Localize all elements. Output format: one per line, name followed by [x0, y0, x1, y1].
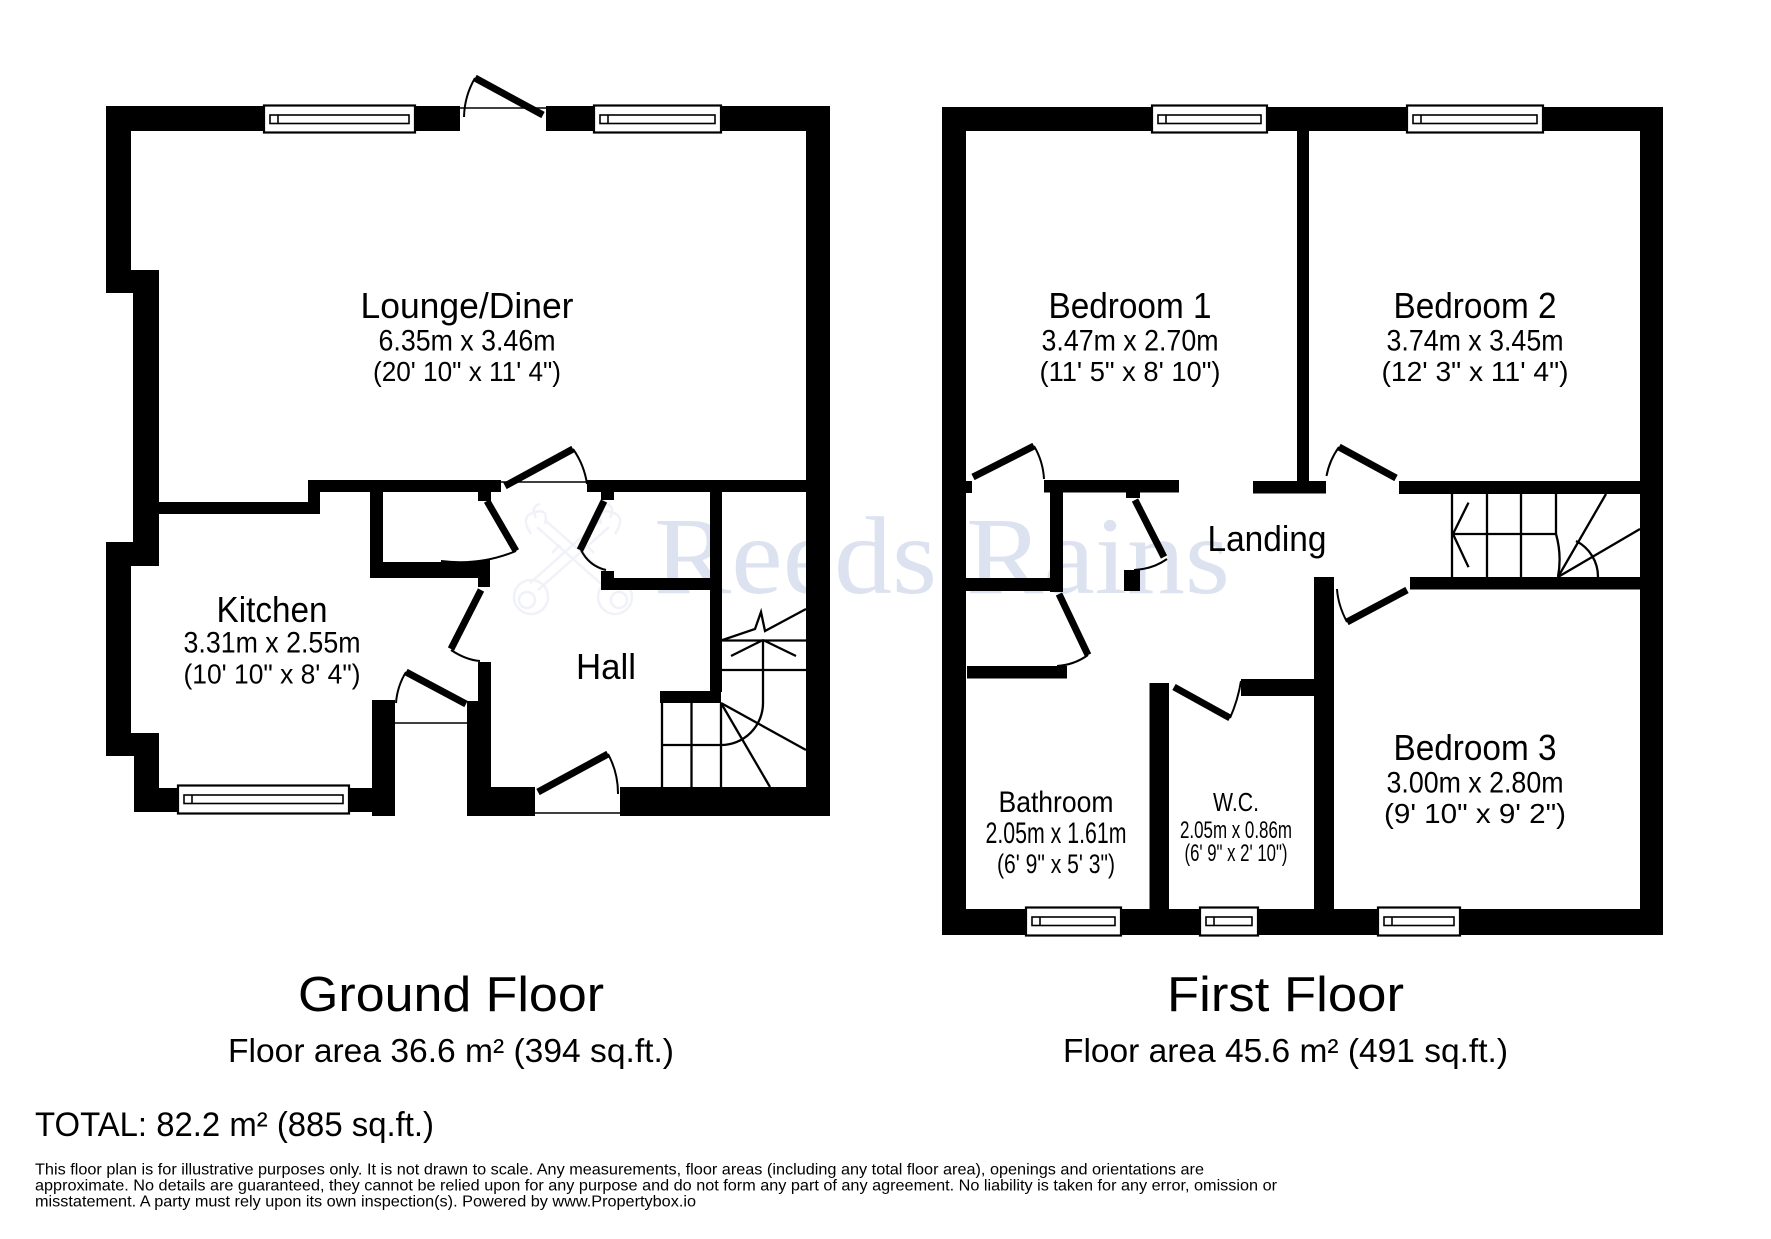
svg-text:3.47m x 2.70m: 3.47m x 2.70m — [1042, 325, 1219, 358]
svg-text:2.05m x 1.61m: 2.05m x 1.61m — [986, 817, 1127, 850]
svg-text:approximate. No details are gu: approximate. No details are guaranteed, … — [35, 1178, 1278, 1195]
svg-text:3.31m x 2.55m: 3.31m x 2.55m — [184, 627, 361, 660]
svg-text:Bedroom 1: Bedroom 1 — [1049, 285, 1212, 326]
svg-text:(6' 9" x 2' 10"): (6' 9" x 2' 10") — [1185, 840, 1288, 867]
svg-text:Ground Floor: Ground Floor — [298, 967, 604, 1022]
svg-text:Bathroom: Bathroom — [999, 786, 1114, 819]
svg-text:Bedroom 3: Bedroom 3 — [1394, 727, 1557, 768]
svg-text:Floor area 45.6 m² (491 sq.ft.: Floor area 45.6 m² (491 sq.ft.) — [1063, 1032, 1508, 1069]
svg-text:(20' 10" x 11' 4"): (20' 10" x 11' 4") — [373, 356, 561, 387]
svg-text:This floor plan is for illustr: This floor plan is for illustrative purp… — [35, 1162, 1204, 1179]
svg-text:Bedroom 2: Bedroom 2 — [1394, 285, 1557, 326]
svg-text:W.C.: W.C. — [1213, 787, 1259, 817]
svg-text:misstatement. A party must rel: misstatement. A party must rely upon its… — [35, 1194, 696, 1211]
svg-text:Floor area 36.6 m² (394 sq.ft.: Floor area 36.6 m² (394 sq.ft.) — [228, 1032, 674, 1069]
svg-text:Kitchen: Kitchen — [217, 589, 328, 630]
svg-text:(9' 10" x 9' 2"): (9' 10" x 9' 2") — [1384, 798, 1566, 829]
svg-text:(10' 10" x 8' 4"): (10' 10" x 8' 4") — [184, 659, 361, 690]
svg-text:TOTAL: 82.2 m² (885 sq.ft.): TOTAL: 82.2 m² (885 sq.ft.) — [35, 1106, 434, 1144]
svg-text:(12' 3" x 11' 4"): (12' 3" x 11' 4") — [1382, 356, 1569, 387]
svg-text:First Floor: First Floor — [1167, 967, 1404, 1022]
svg-text:(6' 9" x 5' 3"): (6' 9" x 5' 3") — [997, 849, 1115, 879]
svg-text:(11' 5" x 8' 10"): (11' 5" x 8' 10") — [1040, 356, 1221, 387]
svg-text:Lounge/Diner: Lounge/Diner — [361, 285, 574, 326]
svg-text:3.00m x 2.80m: 3.00m x 2.80m — [1387, 767, 1564, 800]
svg-text:Landing: Landing — [1208, 518, 1327, 559]
svg-text:3.74m x 3.45m: 3.74m x 3.45m — [1387, 325, 1564, 358]
svg-text:6.35m x 3.46m: 6.35m x 3.46m — [379, 325, 556, 358]
svg-text:Hall: Hall — [576, 646, 636, 687]
